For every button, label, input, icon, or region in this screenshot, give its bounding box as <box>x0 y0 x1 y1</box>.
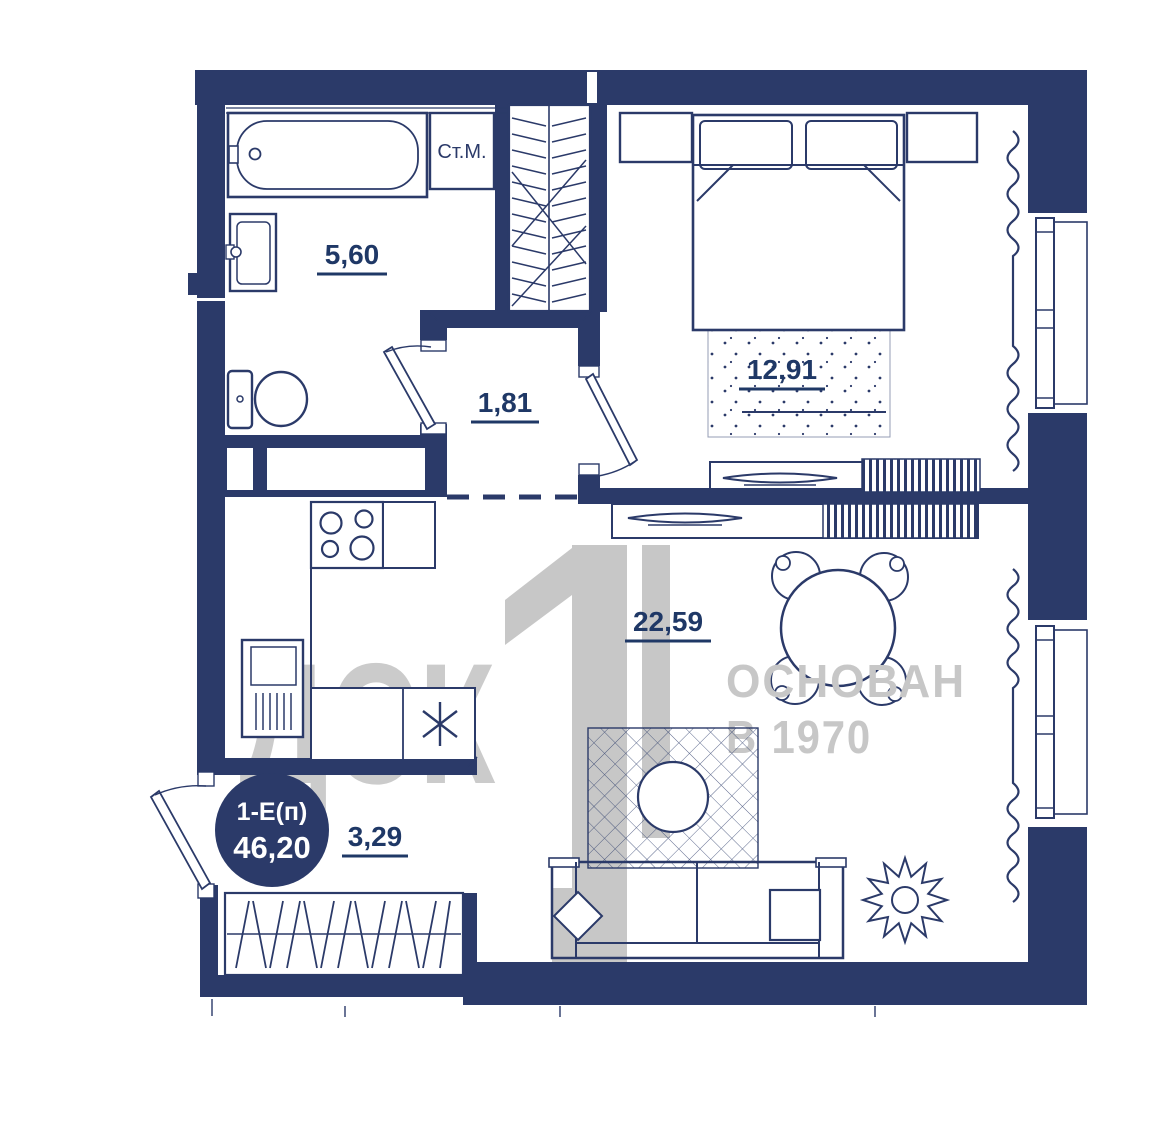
bedroom-area-label: 12,91 <box>747 354 817 385</box>
curtain-bedroom-icon <box>1008 131 1019 471</box>
door-jamb <box>579 464 599 475</box>
wall-right-top-pillar <box>1028 70 1087 218</box>
sofa-pillow-square <box>770 890 820 940</box>
wall-top <box>195 70 1087 105</box>
bedroom-door <box>579 366 637 476</box>
wall-bathroom-right-upper <box>420 310 447 340</box>
wall-left-notch <box>188 273 197 295</box>
wall-hallway-bedroom-upper <box>578 310 600 366</box>
curtains <box>1008 131 1019 902</box>
door-leaf <box>586 374 637 465</box>
window-sill <box>1054 630 1087 814</box>
door-leaf <box>151 791 210 889</box>
living-kitchen-area-label: 22,59 <box>633 606 703 637</box>
bedroom-furniture <box>620 113 980 492</box>
toilet-tank <box>228 371 252 428</box>
floor-plan-page: ДСК <box>0 0 1172 1122</box>
balcony-glazing <box>225 893 463 975</box>
bathroom-door <box>384 340 446 434</box>
unit-type-badge: 1-Е(п) 46,20 <box>215 773 329 887</box>
counter-bottom <box>311 688 475 760</box>
pillow <box>806 121 897 169</box>
nightstand-left <box>620 113 692 162</box>
wall-wardrobe-bedroom <box>590 105 607 312</box>
watermark-founded-line1: ОСНОВАН <box>726 655 966 707</box>
tv-icon <box>628 514 742 523</box>
chair-knob-icon <box>776 556 790 570</box>
balcony-area-label: 3,29 <box>348 821 403 852</box>
dresser-bedroom <box>862 459 980 492</box>
dresser-living <box>823 504 977 538</box>
wall-balcony-right <box>463 893 477 977</box>
door-jamb <box>198 772 214 786</box>
wall-seam-left <box>197 298 225 301</box>
badge-unit-type: 1-Е(п) <box>237 798 308 826</box>
wall-right-middle <box>1028 413 1087 620</box>
washing-machine-label: Ст.М. <box>437 141 486 163</box>
stove <box>311 502 383 568</box>
wall-balcony-bottom <box>200 975 490 997</box>
wall-bathroom-wardrobe <box>495 105 509 312</box>
wall-left <box>197 70 225 775</box>
window-frame <box>1036 218 1054 408</box>
pillow <box>700 121 792 169</box>
coffee-table <box>638 762 708 832</box>
wardrobe <box>509 105 590 311</box>
window-sill <box>1054 222 1087 404</box>
counter-top <box>383 502 435 568</box>
wall-bottom <box>463 962 1087 1005</box>
chair-knob-icon <box>890 557 904 571</box>
armrest-cap <box>816 858 846 867</box>
bathtub <box>228 113 427 197</box>
vent-shaft-small <box>227 448 253 490</box>
nightstand-right <box>907 113 977 162</box>
bathroom: Ст.М. <box>226 113 494 428</box>
tv-icon <box>723 474 837 483</box>
window-frame <box>1036 626 1054 818</box>
toilet-bowl <box>255 372 307 426</box>
living-window <box>1028 620 1087 827</box>
bedroom-window <box>1028 213 1087 413</box>
door-jamb <box>421 340 446 351</box>
door-jamb <box>579 366 599 377</box>
door-swing-arc <box>155 786 206 795</box>
armrest-cap <box>549 858 579 867</box>
wall-seam-top <box>587 72 597 103</box>
vent-shaft-large <box>267 448 425 490</box>
floor-plan-drawing: ДСК <box>0 0 1172 1122</box>
door-leaf <box>384 347 435 429</box>
bathtub-faucet-icon <box>229 146 238 163</box>
curtain-living-icon <box>1008 569 1019 902</box>
plant-icon <box>863 858 947 942</box>
hallway-area-label: 1,81 <box>478 387 533 418</box>
bathroom-area-label: 5,60 <box>325 239 380 270</box>
balcony-door <box>151 772 214 898</box>
badge-total-area: 46,20 <box>233 830 311 865</box>
sink-knob-icon <box>231 247 241 257</box>
